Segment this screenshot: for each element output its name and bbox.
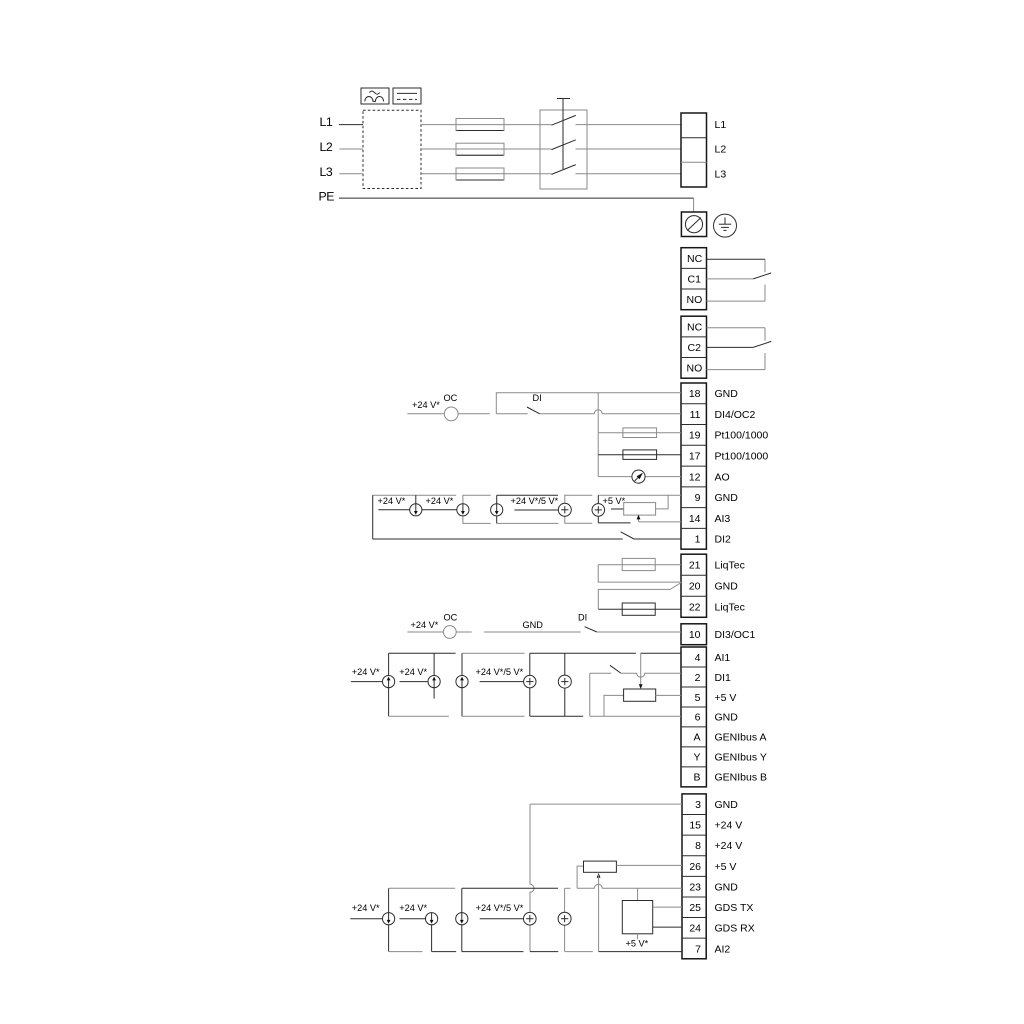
svg-text:DI: DI xyxy=(533,393,542,403)
svg-text:7: 7 xyxy=(695,943,701,955)
svg-text:GENIbus Y: GENIbus Y xyxy=(715,752,767,764)
svg-text:20: 20 xyxy=(689,581,701,593)
svg-text:+24 V*: +24 V* xyxy=(352,903,380,913)
svg-text:11: 11 xyxy=(690,409,701,421)
svg-text:DI4/OC2: DI4/OC2 xyxy=(715,409,756,421)
svg-text:GND: GND xyxy=(715,581,739,593)
svg-text:L2: L2 xyxy=(320,140,333,154)
svg-text:LiqTec: LiqTec xyxy=(715,560,745,572)
svg-text:+24 V: +24 V xyxy=(715,820,743,832)
svg-text:L3: L3 xyxy=(320,165,333,179)
svg-text:L1: L1 xyxy=(320,115,333,129)
svg-text:14: 14 xyxy=(689,513,701,525)
svg-text:GND: GND xyxy=(523,620,544,630)
svg-text:DI1: DI1 xyxy=(715,672,732,684)
svg-text:B: B xyxy=(693,772,700,784)
svg-text:AO: AO xyxy=(715,471,730,483)
svg-text:23: 23 xyxy=(689,881,701,893)
svg-text:DI: DI xyxy=(578,613,587,623)
svg-text:GENIbus B: GENIbus B xyxy=(715,772,768,784)
svg-text:GND: GND xyxy=(715,492,739,504)
svg-text:+24 V*/5 V*: +24 V*/5 V* xyxy=(476,667,524,677)
svg-text:+24 V*/5 V*: +24 V*/5 V* xyxy=(511,496,559,506)
svg-text:+24 V: +24 V xyxy=(715,840,743,852)
svg-text:2: 2 xyxy=(695,672,701,684)
svg-text:LiqTec: LiqTec xyxy=(715,602,745,614)
svg-text:+5 V*: +5 V* xyxy=(626,939,649,949)
svg-text:L1: L1 xyxy=(715,119,727,131)
svg-text:A: A xyxy=(693,732,700,744)
svg-text:OC: OC xyxy=(444,393,458,403)
svg-text:+24 V*: +24 V* xyxy=(411,620,439,630)
svg-text:6: 6 xyxy=(695,712,701,724)
svg-text:L2: L2 xyxy=(715,144,727,156)
svg-text:GND: GND xyxy=(715,388,739,400)
svg-text:10: 10 xyxy=(689,629,701,641)
svg-text:AI2: AI2 xyxy=(715,943,731,955)
svg-text:4: 4 xyxy=(695,652,701,664)
svg-text:25: 25 xyxy=(689,902,701,914)
svg-text:+5 V*: +5 V* xyxy=(603,496,626,506)
svg-text:+5 V: +5 V xyxy=(715,692,737,704)
svg-text:L3: L3 xyxy=(715,168,727,180)
svg-text:21: 21 xyxy=(689,560,701,572)
svg-text:+24 V*: +24 V* xyxy=(412,400,440,410)
svg-text:Pt100/1000: Pt100/1000 xyxy=(715,430,769,442)
svg-text:18: 18 xyxy=(689,388,701,400)
svg-text:+24 V*: +24 V* xyxy=(378,496,406,506)
svg-text:GDS RX: GDS RX xyxy=(715,923,755,935)
svg-text:12: 12 xyxy=(689,471,701,483)
svg-text:5: 5 xyxy=(695,692,701,704)
svg-text:17: 17 xyxy=(689,451,701,463)
svg-text:+24 V*/5 V*: +24 V*/5 V* xyxy=(476,903,524,913)
svg-text:24: 24 xyxy=(689,923,701,935)
svg-text:26: 26 xyxy=(689,861,701,873)
svg-text:1: 1 xyxy=(695,534,701,546)
svg-text:3: 3 xyxy=(695,799,701,811)
svg-text:C2: C2 xyxy=(688,342,702,354)
svg-text:Pt100/1000: Pt100/1000 xyxy=(715,451,769,463)
svg-text:+24 V*: +24 V* xyxy=(426,496,454,506)
svg-text:9: 9 xyxy=(695,492,701,504)
svg-text:NC: NC xyxy=(687,253,703,265)
svg-text:22: 22 xyxy=(689,602,701,614)
svg-text:NC: NC xyxy=(687,321,703,333)
svg-text:+24 V*: +24 V* xyxy=(352,667,380,677)
svg-text:GND: GND xyxy=(715,712,739,724)
svg-text:AI3: AI3 xyxy=(715,513,731,525)
svg-text:+24 V*: +24 V* xyxy=(399,667,427,677)
svg-text:PE: PE xyxy=(319,190,335,204)
svg-text:GND: GND xyxy=(715,799,739,811)
svg-text:19: 19 xyxy=(689,430,701,442)
svg-text:DI2: DI2 xyxy=(715,534,732,546)
svg-text:GDS TX: GDS TX xyxy=(715,902,754,914)
svg-text:8: 8 xyxy=(695,840,701,852)
svg-text:GND: GND xyxy=(715,881,739,893)
svg-text:DI3/OC1: DI3/OC1 xyxy=(715,629,756,641)
svg-text:Y: Y xyxy=(693,752,700,764)
svg-text:AI1: AI1 xyxy=(715,652,731,664)
svg-text:OC: OC xyxy=(444,613,458,623)
svg-text:GENIbus A: GENIbus A xyxy=(715,732,767,744)
svg-text:+24 V*: +24 V* xyxy=(399,903,427,913)
svg-text:NO: NO xyxy=(687,363,703,375)
svg-text:C1: C1 xyxy=(688,274,702,286)
svg-text:+5 V: +5 V xyxy=(715,861,737,873)
svg-text:NO: NO xyxy=(687,294,703,306)
svg-text:15: 15 xyxy=(689,820,701,832)
